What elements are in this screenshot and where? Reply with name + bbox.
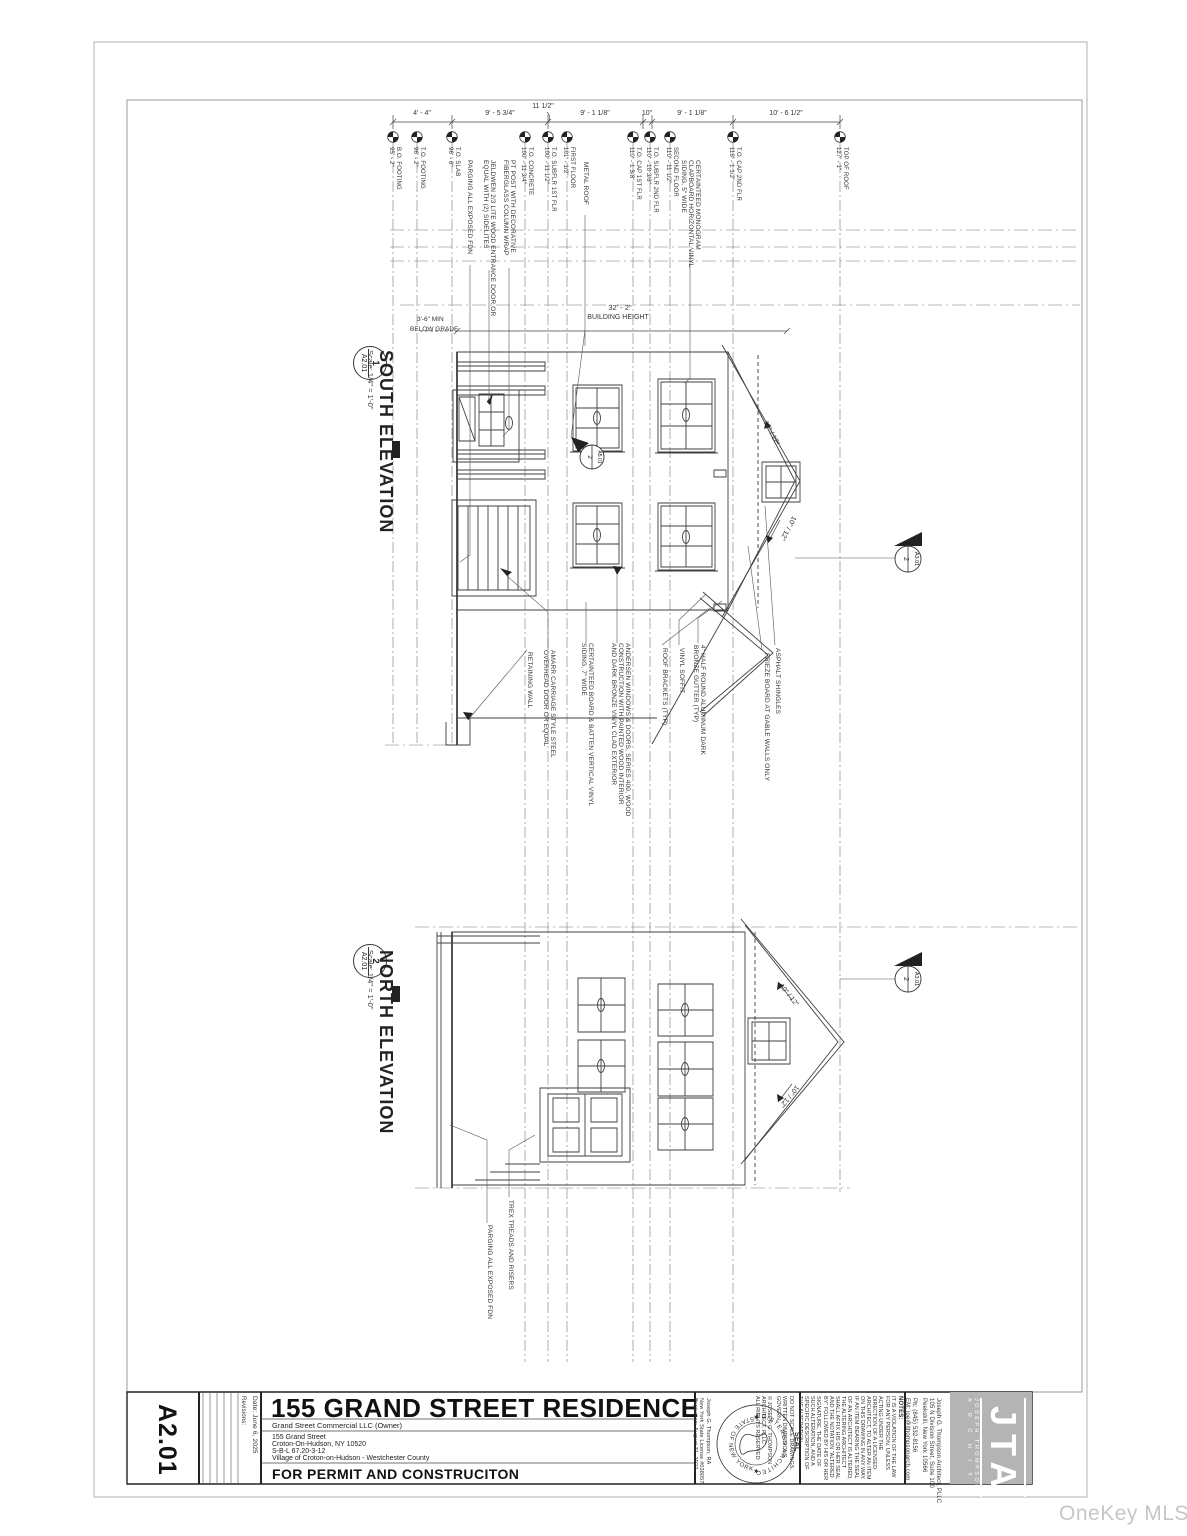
annotation-andersen-windows: ANDERSEN WINDOWS & DOORS, SERIES 400, WO… [609, 643, 631, 817]
annotation-trex-treads: TREX TREADS AND RISERS [507, 1200, 514, 1290]
south-elevation-drawing [392, 345, 800, 745]
annotation-frieze-board: FRIEZE BOARD AT GABLE WALLS ONLY [763, 653, 770, 781]
copyright-1: © JOSEPH G. THOMPSON ARCHITECT, PLLC [760, 1396, 772, 1482]
architectural-drawing-sheet: 2 A3.01 2 A3.01 2 A5.01 [0, 0, 1187, 1536]
date-line: Date: June 6, 2025 [251, 1396, 258, 1454]
level-label: T.O. SUBFLR 2ND FLR110' - 10 3/8" [645, 147, 658, 213]
jta-logo-name2: A R C H I T E C T [965, 1398, 972, 1478]
detail-south-sheet: A5.01 [596, 450, 602, 463]
do-not-scale-1: DO NOT SCALE DRAWINGS. [787, 1396, 793, 1482]
level-label: T.O. SUBFLR 1ST FLR100' - 11 1/2" [543, 147, 556, 212]
building-height-dim-label: 32' - 2" [608, 303, 631, 312]
annotation-pt-post: PT POST WITH DECORATIVEFIBERGLASS COLUMN… [502, 160, 516, 255]
project-address-4: Village of Croton-on-Hudson - Westcheste… [272, 1455, 429, 1463]
below-grade-note-line2: BELOW GRADE [410, 326, 458, 333]
notes-body: IT IS A VIOLATION OF THE LAW FOR ANY PER… [797, 1396, 896, 1482]
dim-label: 10" [642, 110, 652, 117]
level-label: SECOND FLOOR110' - 11 1/2" [665, 147, 678, 197]
annotation-board-batten-siding: CERTAINTEED BOARD & BATTEN VERTICAL VINY… [580, 643, 594, 806]
section-callout-south: 2 A3.01 [795, 532, 922, 572]
view-title-text: SOUTH ELEVATION [375, 350, 396, 533]
titleblock-notes: NOTES: IT IS A VIOLATION OF THE LAW FOR … [753, 1396, 903, 1482]
level-label: B.O. FOOTING95' - 2" [388, 147, 401, 190]
annotation-vinyl-soffit: VINYL SOFFIT [678, 648, 685, 693]
annotation-clapboard-siding: CERTAINTEED MONOGRAMCLAPBOARD HORIZONTAL… [679, 160, 701, 268]
level-label: T.O. CAP 1ST FLR110' - 1 3/8" [628, 147, 641, 200]
below-grade-note-line1: 3'-6" MIN [417, 316, 444, 323]
level-label: T.O. CAP 2ND FLR118' - 1 1/2" [728, 147, 741, 201]
dim-label: 9' - 1 1/8" [677, 110, 707, 117]
level-label: T.O. SLAB96' - 6" [447, 147, 460, 176]
annotation-overhead-door: AMARR CARRIAGE STYLE STEELOVERHEAD DOOR … [542, 650, 556, 758]
jta-logo-initials: JTA [980, 1398, 1026, 1497]
annotation-asphalt-shingles: ASPHALT SHINGLES [774, 648, 781, 714]
copyright-2: ALL RIGHTS RESERVED [753, 1396, 759, 1482]
onekey-mls-watermark: OneKey MLS [1059, 1502, 1187, 1526]
license-info: Joseph G. Thompson, RA New York State Li… [691, 1398, 711, 1484]
revisions-label: Revisions: [239, 1396, 246, 1425]
dim-label: 10' - 6 1/2" [769, 110, 802, 117]
section-callout-north: 2 A3.01 [840, 952, 922, 992]
owner-line: Grand Street Commercial LLC (Owner) [272, 1422, 402, 1430]
building-height-label: BUILDING HEIGHT [587, 314, 648, 321]
dim-label: 9' - 1 1/8" [580, 110, 610, 117]
annotation-parging-fdn: PARGING ALL EXPOSED FDN [466, 160, 473, 254]
drawing-area-border [127, 100, 1082, 1392]
annotation-parging-fdn-north: PARGING ALL EXPOSED FDN [486, 1225, 493, 1319]
dim-label: 9' - 5 3/4" [485, 110, 515, 117]
section-north-sheet: A3.01 [913, 972, 919, 986]
level-label: T.O. FOOTING96' - 2" [412, 147, 425, 189]
level-label: T.O. CONCRETE100' - 11 3/4" [520, 147, 533, 195]
section-south-number: 2 [902, 557, 909, 561]
view-scale-text: Scale: 1/4" = 1'-0" [365, 950, 375, 1134]
project-title: 155 GRAND STREET RESIDENCE [271, 1393, 699, 1424]
section-north-number: 2 [902, 977, 909, 981]
annotation-retaining-wall: RETAINING WALL [526, 652, 533, 708]
detail-callout-south: 2 A5.01 [571, 437, 604, 469]
view-title-north: NORTH ELEVATION Scale: 1/4" = 1'-0" [365, 950, 396, 1134]
architect-contact: Joseph G. Thompson Architect, PLLC 105 N… [903, 1398, 941, 1503]
level-label: TOP OF ROOF127' - 1" [835, 147, 848, 190]
annotation-metal-roof: METAL ROOF [582, 162, 589, 205]
jta-logo-name1: JOSEPH THOMPSON [972, 1398, 980, 1478]
dim-label: 4' - 4" [413, 110, 431, 117]
do-not-scale-2: WRITTEN DIMENSIONS GOVERN. [775, 1396, 787, 1482]
dim-label: 11 1/2" [532, 103, 553, 110]
view-title-south: SOUTH ELEVATION Scale: 1/4" = 1'-0" [365, 350, 396, 533]
view-title-text: NORTH ELEVATION [375, 950, 396, 1134]
jta-logo: JTA JOSEPH THOMPSON A R C H I T E C T [965, 1398, 1026, 1478]
level-label: FIRST FLOOR101' - 1/2" [562, 147, 575, 188]
north-elevation-drawing [392, 919, 844, 1188]
building-height-dim [420, 328, 790, 334]
annotation-gutter: 4" HALF ROUND ALUMINUM DARKBRONZE GUTTER… [692, 645, 706, 755]
annotation-entrance-door: JELDWEN 2/3 LITE WOOD ENTRANCE DOOR OREQ… [482, 160, 496, 316]
section-south-sheet: A3.01 [913, 552, 919, 566]
view-scale-text: Scale: 1/4" = 1'-0" [365, 350, 375, 533]
sheet-number: A2.01 [152, 1404, 181, 1476]
notes-label: NOTES: [896, 1396, 903, 1482]
annotation-roof-brackets: ROOF BRACKETS (TYP) [661, 648, 668, 725]
detail-south-number: 2 [586, 455, 593, 459]
level-markers [388, 132, 846, 143]
issue-status: FOR PERMIT AND CONSTRUCITON [272, 1466, 519, 1482]
